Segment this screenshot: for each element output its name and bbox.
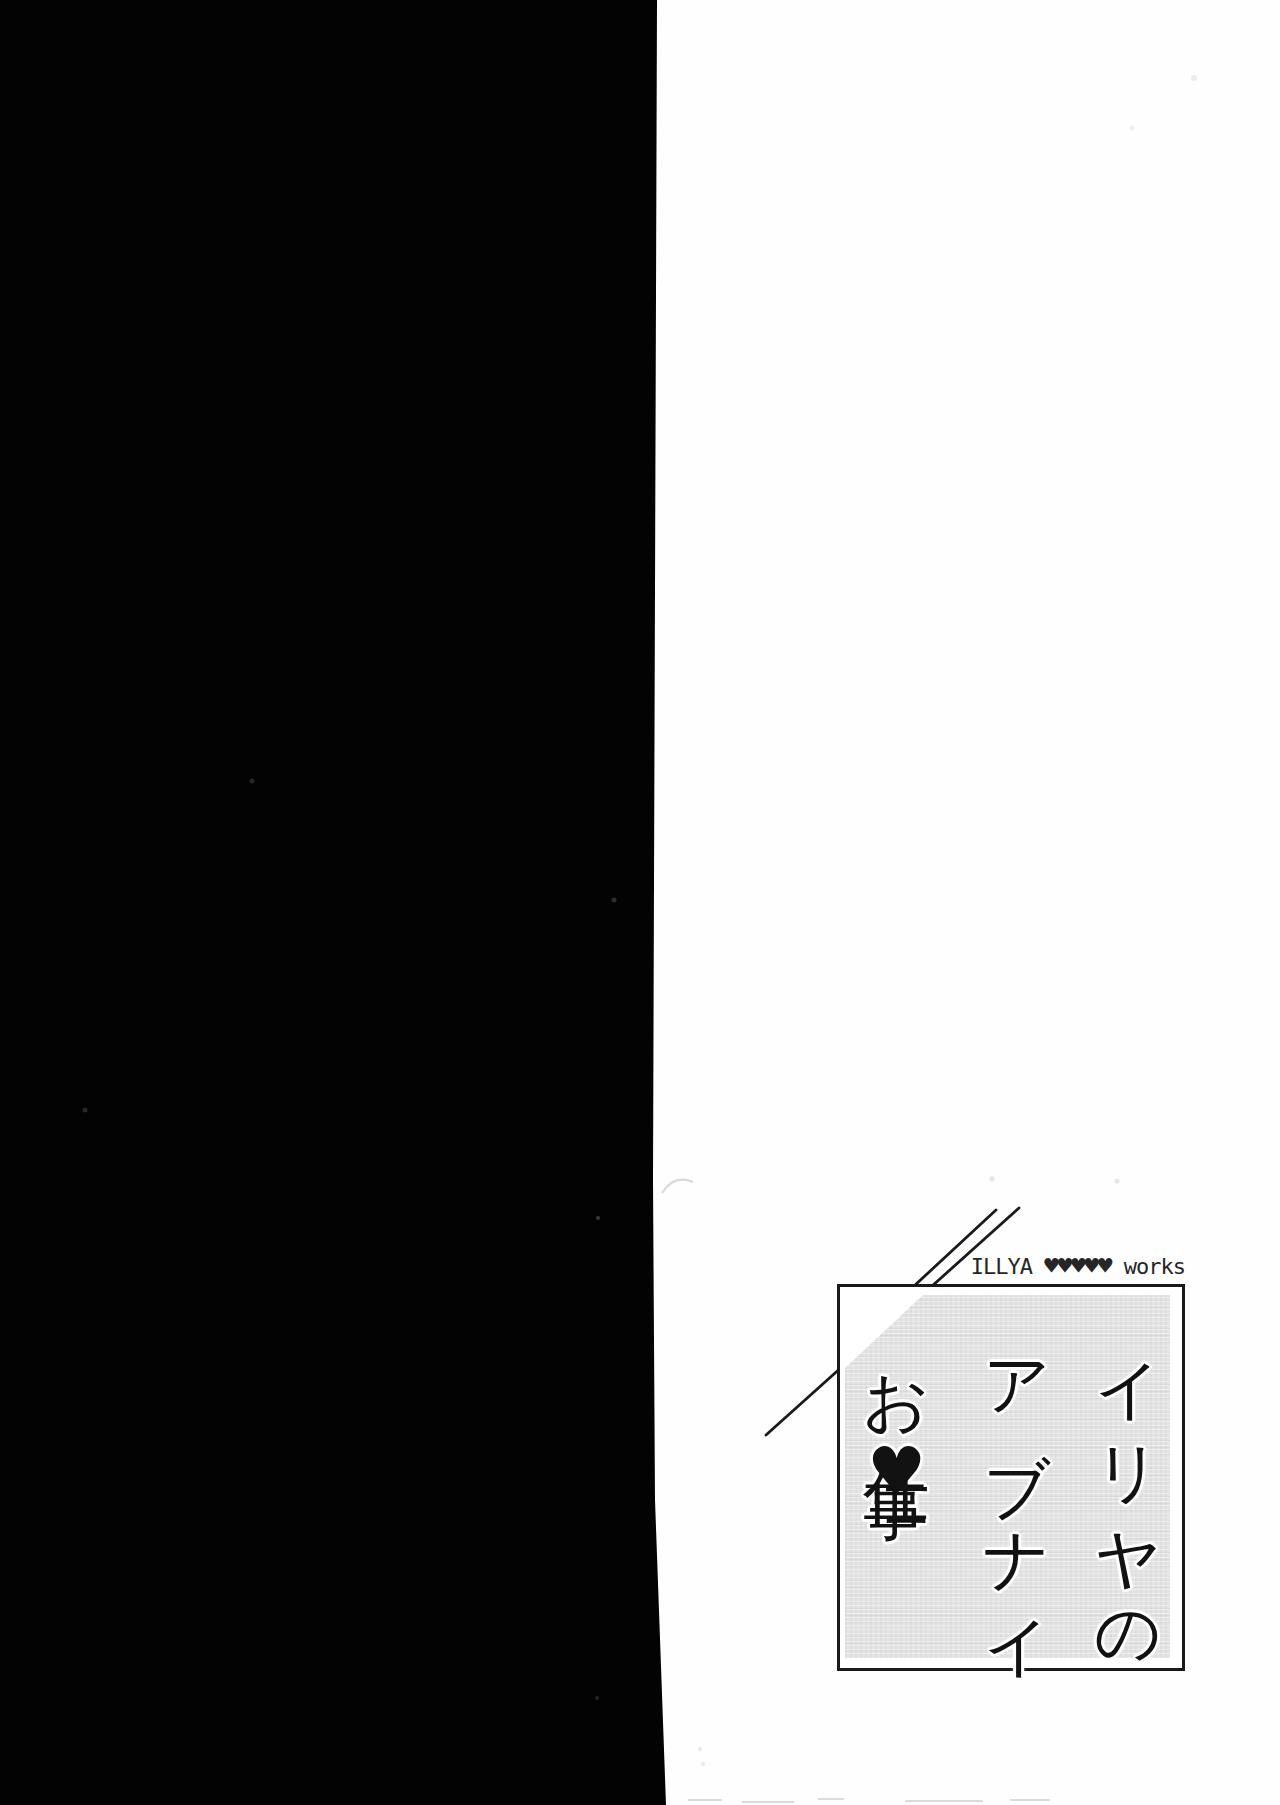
scan-speck — [1191, 75, 1197, 81]
circle-credit-line: ILLYA ♥♥♥♥♥ works — [971, 1254, 1185, 1278]
title-column-2: アブナイ — [984, 1316, 1050, 1656]
black-left-page-region — [0, 0, 668, 1805]
title-column-1: イリヤの — [1095, 1314, 1161, 1655]
heart-icons: ♥♥♥♥♥ — [1044, 1252, 1111, 1280]
scan-speck — [1130, 126, 1135, 131]
scan-speck — [1115, 1179, 1120, 1184]
scan-artifact-bottom-noise — [688, 1799, 1050, 1802]
scan-artifact-arc — [662, 1180, 693, 1193]
works-label: works — [1112, 1254, 1185, 1279]
title-column-3: お仕事♥ — [863, 1328, 929, 1520]
scan-speck — [990, 1177, 995, 1182]
scan-speck — [698, 1747, 702, 1751]
scan-speck — [701, 1762, 705, 1766]
artist-name: ILLYA — [971, 1254, 1044, 1279]
scanned-page: ILLYA ♥♥♥♥♥ works イリヤの アブナイ お仕事♥ — [0, 0, 1280, 1805]
